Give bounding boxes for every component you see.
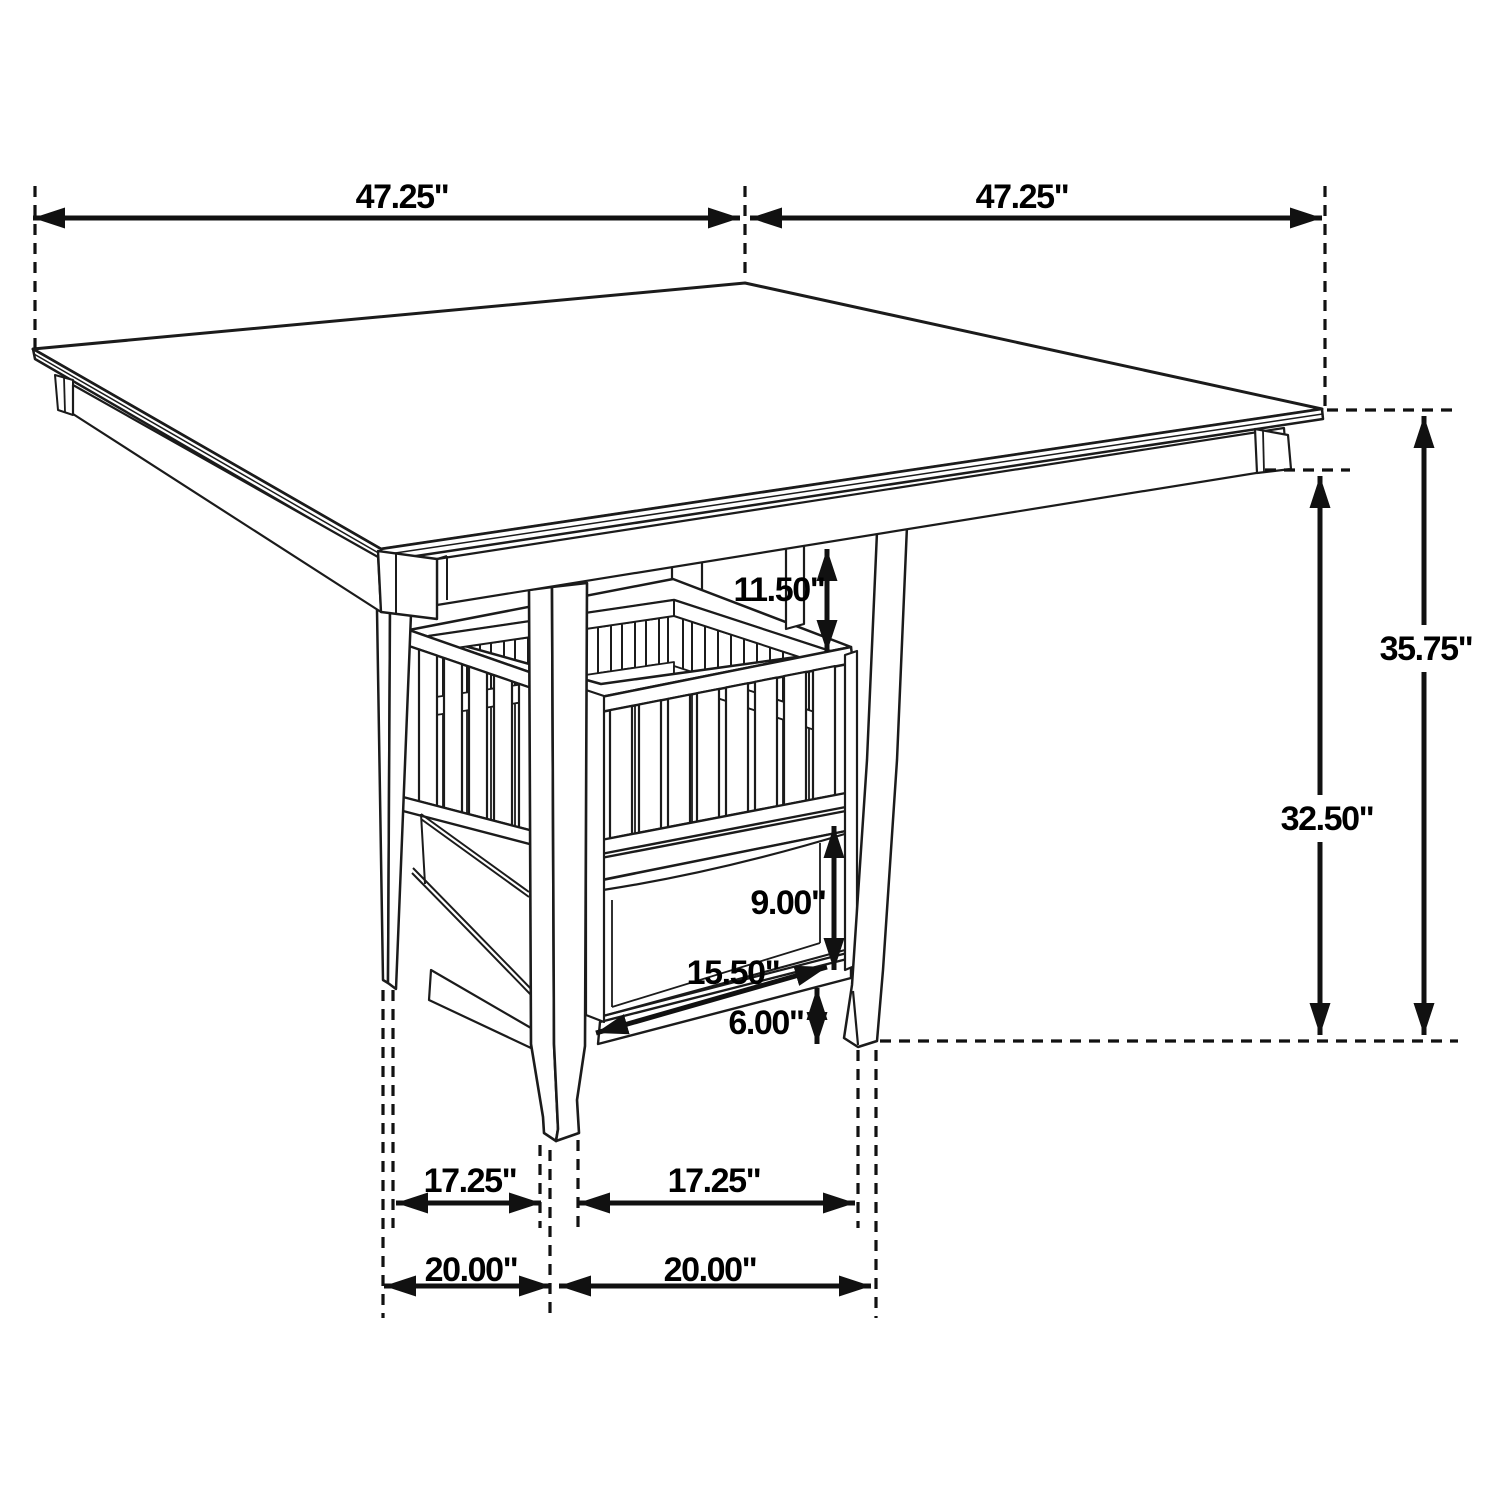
- svg-text:15.50": 15.50": [687, 954, 780, 992]
- svg-text:17.25": 17.25": [424, 1162, 517, 1200]
- svg-text:32.50": 32.50": [1281, 800, 1374, 838]
- svg-text:17.25": 17.25": [668, 1162, 761, 1200]
- svg-text:47.25": 47.25": [356, 178, 449, 216]
- svg-text:11.50": 11.50": [734, 571, 825, 609]
- svg-text:47.25": 47.25": [976, 178, 1069, 216]
- svg-text:9.00": 9.00": [750, 884, 825, 922]
- svg-text:6.00": 6.00": [728, 1004, 803, 1042]
- svg-text:20.00": 20.00": [664, 1251, 757, 1289]
- svg-text:35.75": 35.75": [1380, 630, 1473, 668]
- svg-text:20.00": 20.00": [425, 1251, 518, 1289]
